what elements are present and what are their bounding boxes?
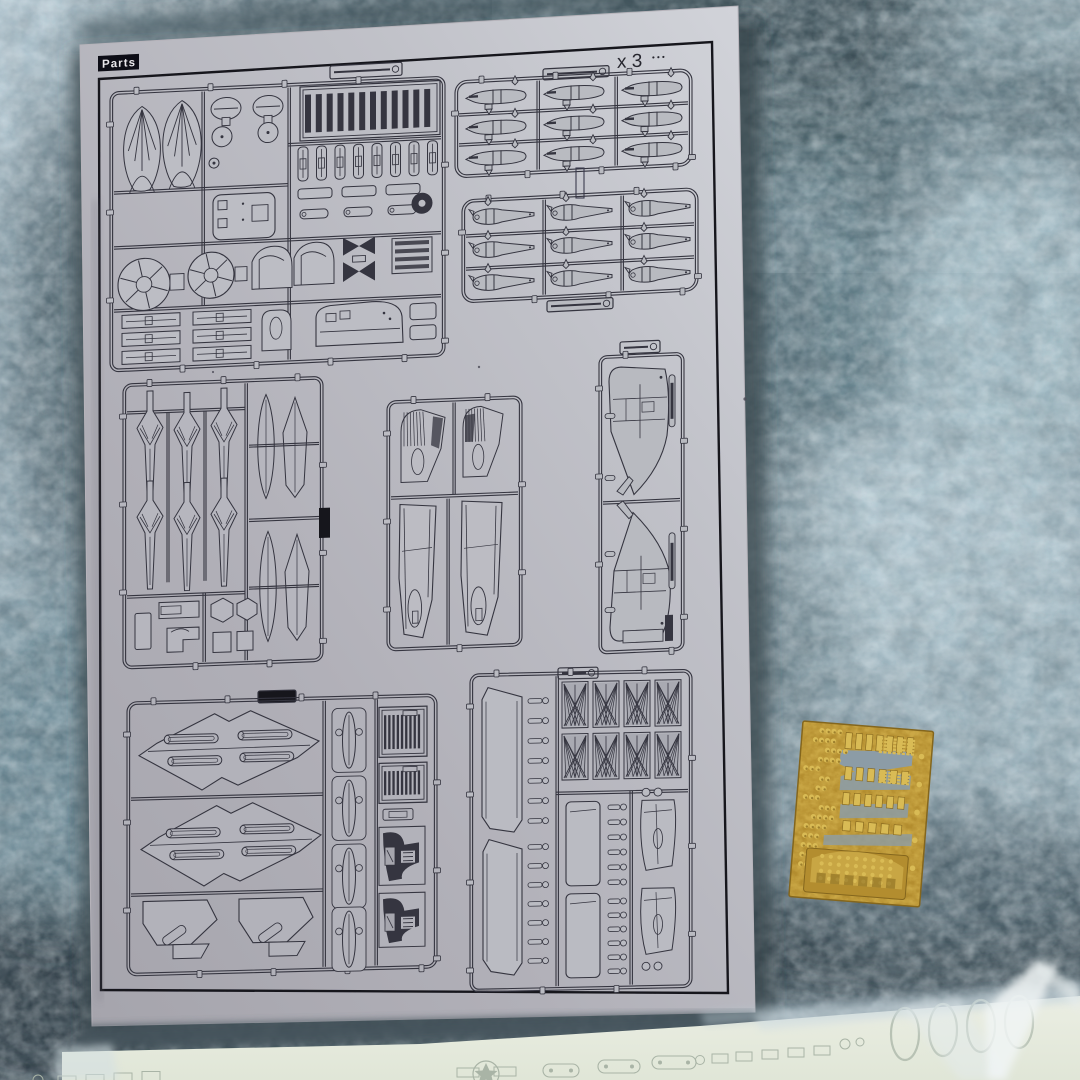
- svg-text:Parts: Parts: [102, 57, 135, 71]
- svg-text:• • •: • • •: [652, 52, 665, 62]
